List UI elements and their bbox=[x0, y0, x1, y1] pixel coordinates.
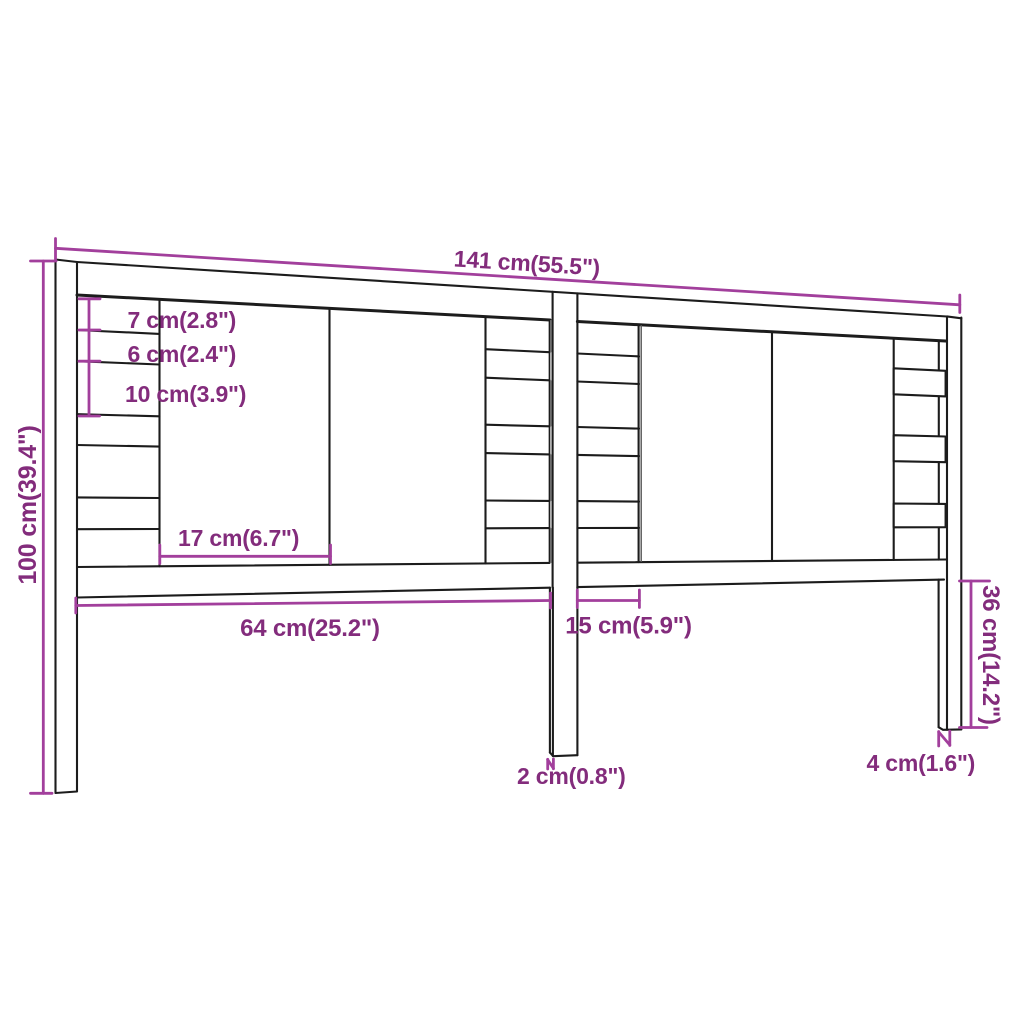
svg-text:4 cm(1.6"): 4 cm(1.6") bbox=[867, 750, 976, 776]
svg-text:15 cm(5.9"): 15 cm(5.9") bbox=[565, 613, 692, 640]
svg-text:17 cm(6.7"): 17 cm(6.7") bbox=[178, 525, 299, 551]
svg-text:6 cm(2.4"): 6 cm(2.4") bbox=[128, 341, 237, 367]
svg-text:36 cm(14.2"): 36 cm(14.2") bbox=[977, 585, 1004, 725]
svg-text:100 cm(39.4"): 100 cm(39.4") bbox=[14, 425, 42, 584]
svg-text:2 cm(0.8"): 2 cm(0.8") bbox=[517, 763, 626, 789]
svg-text:7 cm(2.8"): 7 cm(2.8") bbox=[128, 307, 237, 333]
svg-text:10 cm(3.9"): 10 cm(3.9") bbox=[125, 381, 246, 407]
svg-text:64 cm(25.2"): 64 cm(25.2") bbox=[240, 615, 380, 642]
